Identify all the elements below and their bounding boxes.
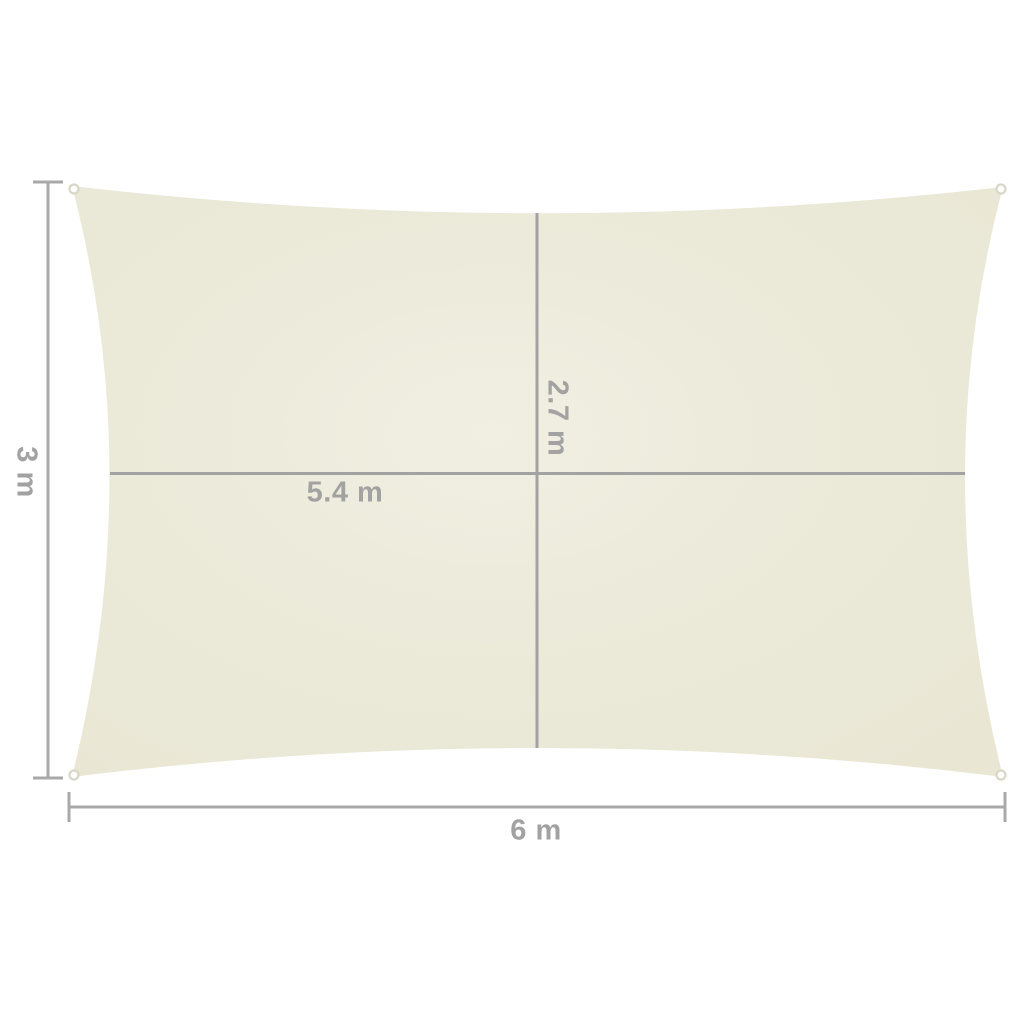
shade-sail-dimension-diagram: 3 m 5.4 m 2.7 m 6 m — [0, 0, 1024, 1024]
grommet-top-left-icon — [70, 185, 79, 194]
width-dimension-label: 6 m — [510, 815, 561, 848]
grommet-top-right-icon — [997, 185, 1006, 194]
inner-width-dimension-label: 5.4 m — [307, 477, 384, 510]
grommet-bottom-right-icon — [997, 771, 1006, 780]
inner-height-dimension-label: 2.7 m — [541, 380, 574, 457]
height-dimension-label: 3 m — [10, 446, 43, 497]
diagram-graphics — [0, 0, 1024, 1024]
grommet-bottom-left-icon — [70, 771, 79, 780]
